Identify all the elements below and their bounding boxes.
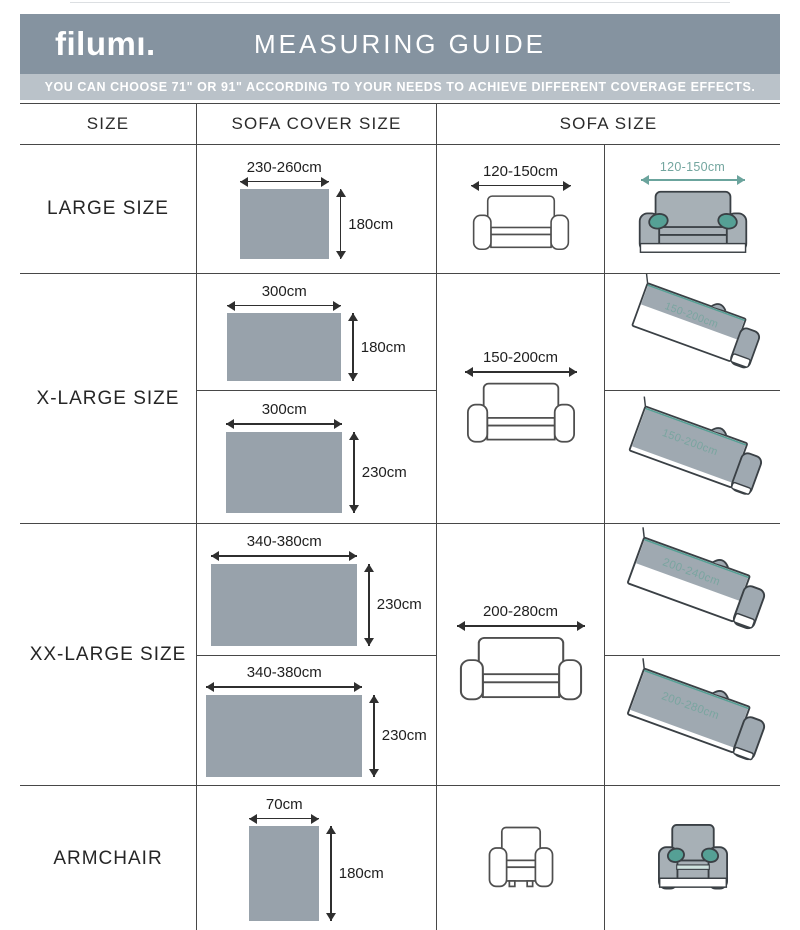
header-bar: filumı. MEASURING GUIDE: [20, 14, 780, 74]
cover-width-label: 340-380cm: [247, 533, 322, 550]
cover-width-label: 230-260cm: [247, 159, 322, 176]
cover-rect-diagram: 340-380cm 230cm: [206, 664, 427, 777]
height-arrow: [353, 432, 355, 513]
sofa-covered-cell-xlarge-91: 150-200cm: [605, 391, 780, 524]
sofa-covered-figure: 120-150cm: [631, 160, 755, 258]
sofa-outline-cell-large: 120-150cm: [437, 145, 605, 274]
cover-width-label: 70cm: [266, 796, 303, 813]
page-title: MEASURING GUIDE: [254, 29, 546, 60]
sofa-width-label: 200-280cm: [483, 603, 558, 620]
measuring-guide-page: filumı. MEASURING GUIDE YOU CAN CHOOSE 7…: [0, 0, 800, 930]
sofa-outline-cell-xlarge: 150-200cm: [437, 274, 605, 524]
sofa-width-label: 150-200cm: [483, 349, 558, 366]
width-arrow: [457, 625, 585, 627]
coverage-banner: YOU CAN CHOOSE 71" OR 91" ACCORDING TO Y…: [20, 74, 780, 100]
cover-width-label: 300cm: [262, 401, 307, 418]
armchair-outline-drawing: [483, 822, 559, 896]
sofa-width-label: 120-150cm: [483, 163, 558, 180]
cover-rectangle: [206, 695, 362, 777]
sofa-covered-drawing: [631, 186, 755, 258]
cover-height-label: 180cm: [361, 339, 406, 356]
armchair-covered-cell: [605, 786, 780, 930]
cover-height-label: 180cm: [348, 216, 393, 233]
sofa-outline-drawing: [452, 632, 590, 706]
cover-rectangle: [249, 826, 319, 921]
cover-cell-xlarge-91: 300cm 230cm: [197, 391, 437, 524]
cover-rectangle: [211, 564, 357, 646]
width-arrow: [206, 686, 362, 688]
width-arrow: [641, 179, 745, 181]
brand-logo: filumı.: [55, 25, 156, 63]
cover-width-label: 340-380cm: [247, 664, 322, 681]
sofa-outline-drawing: [460, 378, 582, 448]
armchair-covered-drawing: [652, 819, 734, 899]
cover-cell-armchair: 70cm 180cm: [197, 786, 437, 930]
sofa-outline-figure: 150-200cm: [460, 349, 582, 448]
cover-cell-large: 230-260cm 180cm: [197, 145, 437, 274]
cover-rect-diagram: 70cm 180cm: [249, 796, 384, 922]
sofa-covered-angled-drawing: 150-200cm: [618, 279, 768, 385]
cover-rectangle: [227, 313, 341, 381]
cover-height-label: 230cm: [382, 727, 427, 744]
size-label-large: LARGE SIZE: [20, 145, 197, 274]
cover-rectangle: [226, 432, 342, 513]
height-arrow: [330, 826, 332, 921]
width-arrow: [227, 305, 341, 307]
measuring-table: SIZE SOFA COVER SIZE SOFA SIZE LARGE SIZ…: [20, 103, 780, 930]
cover-rect-diagram: 230-260cm 180cm: [240, 159, 394, 260]
cover-rectangle: [240, 189, 329, 259]
column-header-sofa-size: SOFA SIZE: [437, 104, 780, 145]
cover-rect-diagram: 300cm 180cm: [227, 283, 406, 382]
width-arrow: [226, 423, 342, 425]
sofa-covered-angled-drawing: 150-200cm: [615, 402, 770, 512]
width-arrow: [249, 818, 319, 820]
width-arrow: [240, 181, 329, 183]
cover-cell-xlarge-71: 300cm 180cm: [197, 274, 437, 391]
width-arrow: [465, 371, 577, 373]
column-header-cover-size: SOFA COVER SIZE: [197, 104, 437, 145]
sofa-outline-drawing: [466, 191, 576, 255]
armchair-outline-cell: [437, 786, 605, 930]
sofa-outline-figure: 200-280cm: [452, 603, 590, 706]
width-arrow: [471, 185, 571, 187]
height-arrow: [368, 564, 370, 646]
sofa-covered-angled-drawing: 200-280cm: [613, 664, 773, 778]
width-arrow: [211, 555, 357, 557]
size-label-armchair: ARMCHAIR: [20, 786, 197, 930]
sofa-covered-cell-large: 120-150cm: [605, 145, 780, 274]
cover-height-label: 180cm: [339, 865, 384, 882]
cover-height-label: 230cm: [362, 464, 407, 481]
height-arrow: [373, 695, 375, 777]
height-arrow: [340, 189, 342, 259]
cover-cell-xxlarge-71: 340-380cm 230cm: [197, 524, 437, 656]
sofa-covered-width-label: 120-150cm: [660, 160, 725, 174]
cover-rect-diagram: 300cm 230cm: [226, 401, 407, 513]
size-label-xxlarge: XX-LARGE SIZE: [20, 524, 197, 786]
sofa-covered-cell-xlarge-71: 150-200cm: [605, 274, 780, 391]
cover-rect-diagram: 340-380cm 230cm: [211, 533, 422, 646]
sofa-outline-cell-xxlarge: 200-280cm: [437, 524, 605, 786]
cover-cell-xxlarge-91: 340-380cm 230cm: [197, 656, 437, 786]
sofa-covered-cell-xxlarge-91: 200-280cm: [605, 656, 780, 786]
top-hairline: [70, 2, 730, 3]
sofa-outline-figure: 120-150cm: [466, 163, 576, 256]
height-arrow: [352, 313, 354, 381]
cover-height-label: 230cm: [377, 596, 422, 613]
sofa-covered-angled-drawing: 200-240cm: [613, 533, 773, 647]
sofa-covered-cell-xxlarge-71: 200-240cm: [605, 524, 780, 656]
size-label-xlarge: X-LARGE SIZE: [20, 274, 197, 524]
cover-width-label: 300cm: [262, 283, 307, 300]
column-header-size: SIZE: [20, 104, 197, 145]
